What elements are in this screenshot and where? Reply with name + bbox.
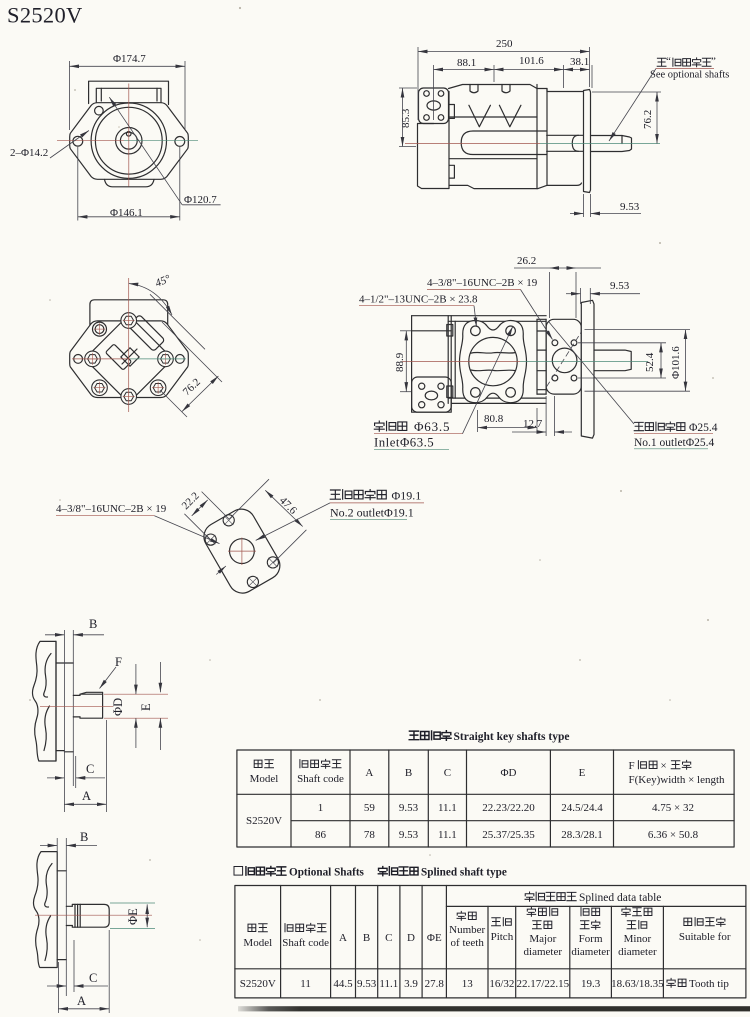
svg-text:22.17/22.15: 22.17/22.15: [517, 978, 570, 990]
svg-text:101.6: 101.6: [519, 55, 544, 67]
svg-text:44.5: 44.5: [333, 978, 353, 990]
svg-text:Splined data table: Splined data table: [579, 892, 661, 904]
svg-text:Minor: Minor: [624, 933, 652, 945]
svg-text:C: C: [385, 932, 392, 944]
svg-text:C: C: [86, 762, 94, 776]
svg-text:Major: Major: [529, 933, 556, 945]
svg-text:B: B: [405, 767, 412, 779]
svg-text:No.1 outletΦ25.4: No.1 outletΦ25.4: [634, 437, 715, 449]
svg-text:×: ×: [661, 760, 667, 772]
svg-text:Straight key shafts type: Straight key shafts type: [454, 731, 570, 743]
svg-text:Shaft code: Shaft code: [297, 773, 344, 785]
svg-text:88.9: 88.9: [394, 352, 406, 372]
svg-text:85.3: 85.3: [400, 108, 412, 128]
svg-text:ΦE: ΦE: [126, 908, 140, 925]
svg-text:12.7: 12.7: [523, 418, 543, 430]
svg-text:C: C: [444, 767, 451, 779]
svg-text:11.1: 11.1: [438, 829, 457, 841]
svg-text:1: 1: [318, 802, 324, 814]
svg-text:A: A: [365, 767, 373, 779]
svg-text:Suitable for: Suitable for: [679, 931, 731, 943]
svg-text:ΦD: ΦD: [111, 698, 125, 716]
svg-text:F: F: [629, 760, 635, 772]
svg-text:4–3/8"–16UNC–2B × 19: 4–3/8"–16UNC–2B × 19: [427, 277, 538, 289]
svg-text:”: ”: [711, 56, 716, 68]
svg-text:59: 59: [364, 802, 376, 814]
svg-text:B: B: [89, 617, 97, 631]
svg-text:27.8: 27.8: [425, 978, 445, 990]
svg-text:86: 86: [315, 829, 327, 841]
svg-text:Φ120.7: Φ120.7: [184, 194, 217, 206]
svg-text:Optional Shafts: Optional Shafts: [289, 867, 365, 879]
svg-text:F(Key)width × length: F(Key)width × length: [629, 774, 726, 786]
svg-text:See optional shafts: See optional shafts: [650, 70, 729, 81]
svg-text:22.23/22.20: 22.23/22.20: [482, 802, 535, 814]
svg-text:Shaft code: Shaft code: [282, 937, 329, 949]
svg-text:C: C: [89, 971, 97, 985]
svg-text:Φ25.4: Φ25.4: [689, 422, 718, 434]
svg-text:diameter: diameter: [571, 946, 610, 958]
svg-text:S2520V: S2520V: [7, 3, 83, 28]
svg-text:E: E: [139, 703, 153, 711]
svg-text:Tooth tip: Tooth tip: [689, 978, 729, 990]
svg-text:No.2 outletΦ19.1: No.2 outletΦ19.1: [330, 506, 414, 520]
svg-text:ΦD: ΦD: [501, 767, 517, 779]
svg-text:D: D: [407, 932, 415, 944]
svg-text:4–3/8"–16UNC–2B × 19: 4–3/8"–16UNC–2B × 19: [56, 503, 167, 515]
svg-text:13: 13: [462, 978, 474, 990]
svg-text:diameter: diameter: [524, 946, 563, 958]
svg-text:16/32: 16/32: [489, 978, 514, 990]
svg-text:A: A: [77, 994, 86, 1008]
svg-text:A: A: [82, 789, 91, 803]
svg-text:9.53: 9.53: [399, 802, 419, 814]
svg-text:4–1/2"–13UNC–2B × 23.8: 4–1/2"–13UNC–2B × 23.8: [359, 294, 478, 306]
svg-text:250: 250: [496, 38, 513, 50]
svg-text:24.5/24.4: 24.5/24.4: [561, 802, 603, 814]
svg-text:Φ174.7: Φ174.7: [113, 53, 146, 65]
svg-text:9.53: 9.53: [399, 829, 419, 841]
svg-text:76.2: 76.2: [642, 110, 654, 129]
svg-text:F: F: [115, 655, 122, 669]
svg-text:Number: Number: [449, 924, 485, 936]
svg-text:ΦE: ΦE: [427, 932, 442, 944]
svg-text:A: A: [339, 932, 347, 944]
svg-text:9.53: 9.53: [620, 201, 640, 213]
svg-text:11.1: 11.1: [379, 978, 398, 990]
svg-text:B: B: [80, 830, 88, 844]
svg-text:B: B: [363, 932, 370, 944]
svg-text:26.2: 26.2: [517, 255, 536, 267]
svg-text:52.4: 52.4: [644, 352, 656, 372]
svg-text:88.1: 88.1: [457, 57, 476, 69]
svg-text:diameter: diameter: [618, 946, 657, 958]
svg-text:18.63/18.35: 18.63/18.35: [611, 978, 664, 990]
svg-text:InletΦ63.5: InletΦ63.5: [374, 436, 434, 450]
svg-text:“: “: [666, 56, 671, 68]
svg-text:78: 78: [364, 829, 376, 841]
svg-text:S2520V: S2520V: [240, 978, 276, 990]
svg-text:6.36 × 50.8: 6.36 × 50.8: [648, 829, 699, 841]
svg-text:28.3/28.1: 28.3/28.1: [561, 829, 603, 841]
svg-text:Splined shaft type: Splined shaft type: [421, 867, 507, 879]
svg-text:E: E: [579, 767, 586, 779]
svg-text:Model: Model: [250, 773, 279, 785]
svg-text:25.37/25.35: 25.37/25.35: [482, 829, 535, 841]
svg-text:Φ63.5: Φ63.5: [414, 419, 450, 434]
svg-text:9.53: 9.53: [610, 280, 630, 292]
svg-text:80.8: 80.8: [484, 413, 504, 425]
svg-text:Pitch: Pitch: [491, 931, 514, 943]
svg-text:2–Φ14.2: 2–Φ14.2: [10, 147, 48, 159]
svg-text:9.53: 9.53: [357, 978, 377, 990]
svg-text:Φ101.6: Φ101.6: [670, 346, 682, 379]
svg-text:Form: Form: [579, 933, 603, 945]
svg-text:19.3: 19.3: [581, 978, 601, 990]
svg-text:Model: Model: [243, 937, 272, 949]
svg-text:11.1: 11.1: [438, 802, 457, 814]
svg-text:4.75 × 32: 4.75 × 32: [652, 802, 694, 814]
svg-text:3.9: 3.9: [404, 978, 418, 990]
svg-text:Φ19.1: Φ19.1: [392, 489, 422, 503]
svg-text:of teeth: of teeth: [451, 937, 485, 949]
svg-text:38.1: 38.1: [570, 56, 589, 68]
svg-text:S2520V: S2520V: [246, 815, 282, 827]
svg-text:11: 11: [300, 978, 311, 990]
